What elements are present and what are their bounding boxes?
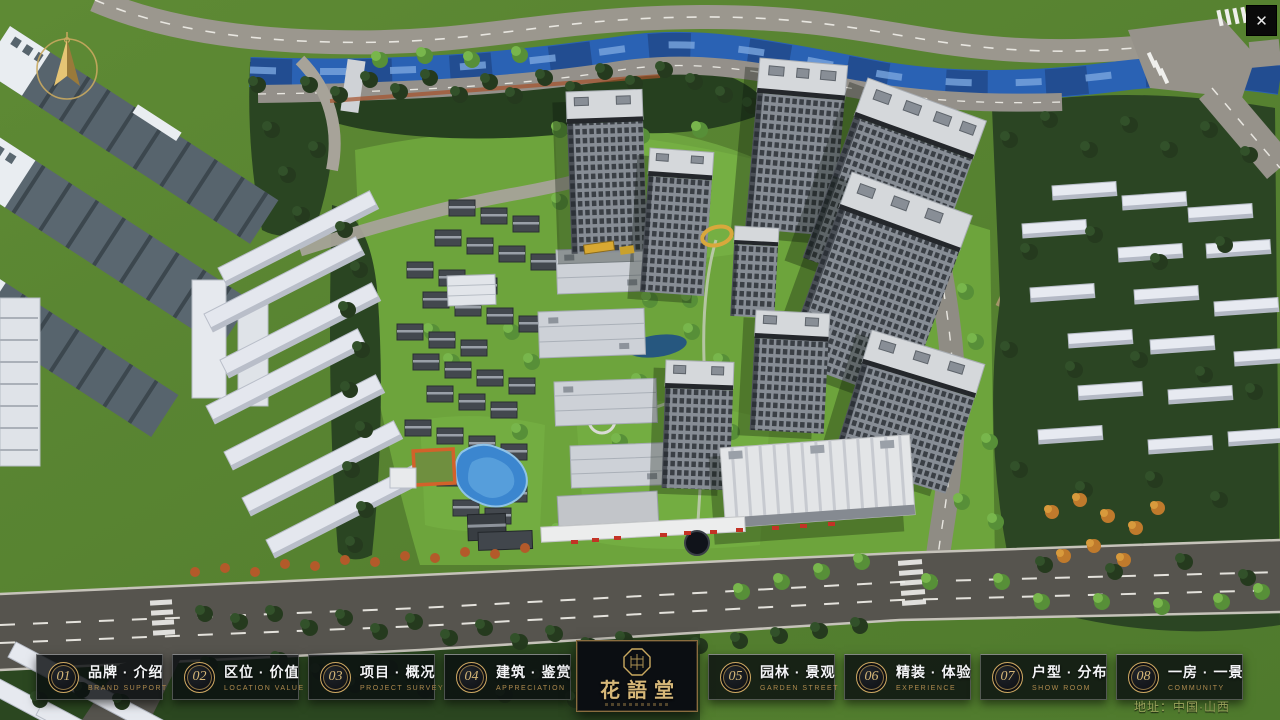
- menu-label-zh: 精装 · 体验: [896, 662, 970, 682]
- app-window: ✕ 01 品牌 · 介绍 BRAND SUPPORT 02 区位 · 价值 LO…: [0, 0, 1280, 720]
- menu-label-en: EXPERIENCE: [896, 685, 970, 692]
- menu-number-badge: 03: [320, 662, 351, 693]
- menu-item-project[interactable]: 03 项目 · 概况 PROJECT SURVEY: [308, 654, 435, 700]
- menu-label-zh: 户型 · 分布: [1032, 662, 1106, 682]
- menu-label-zh: 一房 · 一景: [1168, 662, 1242, 682]
- menu-item-floorplan[interactable]: 07 户型 · 分布 SHOW ROOM: [980, 654, 1107, 700]
- masterplan-render: [0, 0, 1280, 720]
- brand-logo-plaque: 花語堂: [576, 640, 698, 712]
- menu-number-badge: 05: [720, 662, 751, 693]
- menu-label-en: GARDEN STREET: [760, 685, 834, 692]
- close-button[interactable]: ✕: [1246, 5, 1277, 36]
- menu-label-en: LOCATION VALUE: [224, 685, 298, 692]
- menu-group-right: 05 园林 · 景观 GARDEN STREET 06 精装 · 体验 EXPE…: [708, 654, 1243, 702]
- menu-label-en: PROJECT SURVEY: [360, 685, 434, 692]
- logo-subtitle-decoration: [605, 703, 669, 706]
- menu-number-badge: 06: [856, 662, 887, 693]
- menu-label-en: COMMUNITY: [1168, 685, 1242, 692]
- menu-label-en: SHOW ROOM: [1032, 685, 1106, 692]
- menu-number-badge: 01: [48, 662, 79, 693]
- menu-label-en: APPRECIATION: [496, 685, 570, 692]
- menu-item-interior[interactable]: 06 精装 · 体验 EXPERIENCE: [844, 654, 971, 700]
- project-address: 地址：中国·山西: [1134, 698, 1274, 715]
- compass-icon: [30, 30, 104, 104]
- menu-number-badge: 08: [1128, 662, 1159, 693]
- menu-item-views[interactable]: 08 一房 · 一景 COMMUNITY: [1116, 654, 1243, 700]
- menu-number-badge: 04: [456, 662, 487, 693]
- menu-item-architecture[interactable]: 04 建筑 · 鉴赏 APPRECIATION: [444, 654, 571, 700]
- menu-group-left: 01 品牌 · 介绍 BRAND SUPPORT 02 区位 · 价值 LOCA…: [36, 654, 571, 702]
- menu-number-badge: 07: [992, 662, 1023, 693]
- menu-label-zh: 园林 · 景观: [760, 662, 834, 682]
- seal-emblem-icon: [622, 647, 652, 677]
- menu-item-garden[interactable]: 05 园林 · 景观 GARDEN STREET: [708, 654, 835, 700]
- menu-item-brand[interactable]: 01 品牌 · 介绍 BRAND SUPPORT: [36, 654, 163, 700]
- menu-number-badge: 02: [184, 662, 215, 693]
- menu-label-zh: 区位 · 价值: [224, 662, 298, 682]
- menu-label-zh: 建筑 · 鉴赏: [496, 662, 570, 682]
- menu-label-zh: 项目 · 概况: [360, 662, 434, 682]
- menu-item-location[interactable]: 02 区位 · 价值 LOCATION VALUE: [172, 654, 299, 700]
- menu-label-zh: 品牌 · 介绍: [88, 662, 162, 682]
- brand-name: 花語堂: [593, 680, 681, 700]
- menu-label-en: BRAND SUPPORT: [88, 685, 162, 692]
